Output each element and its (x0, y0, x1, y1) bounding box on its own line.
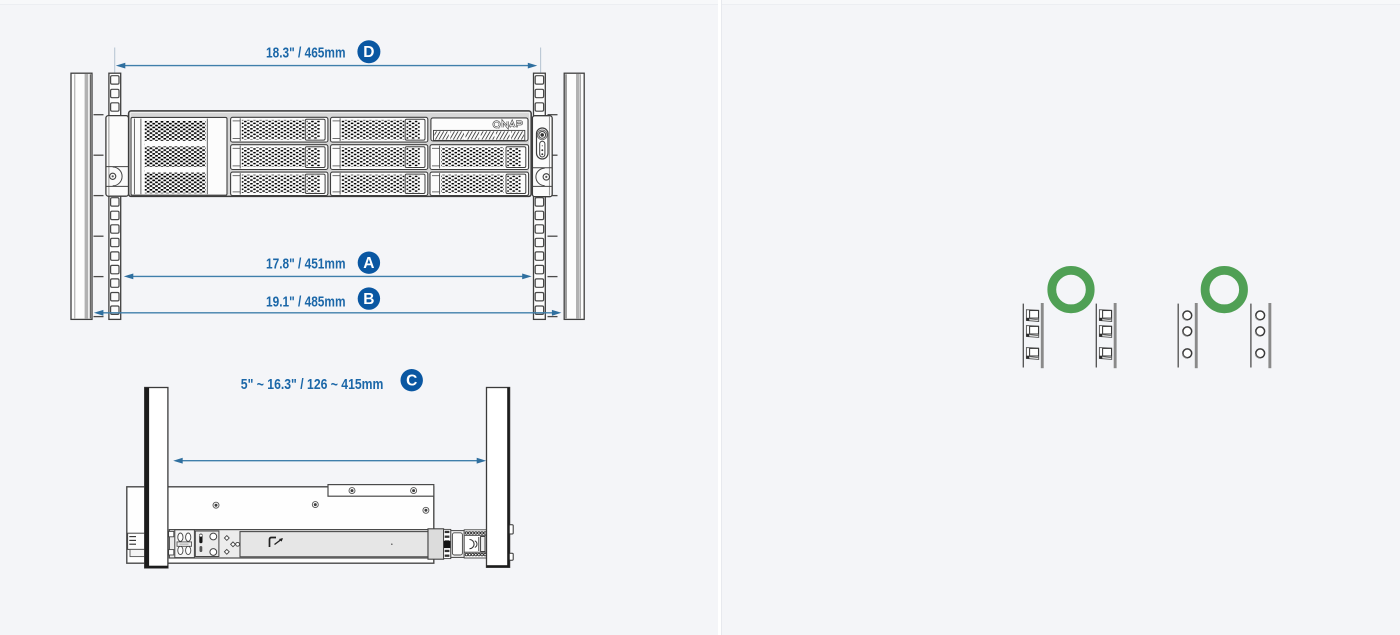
svg-text:5" ~ 16.3" / 126 ~ 415mm: 5" ~ 16.3" / 126 ~ 415mm (241, 377, 384, 393)
svg-text:19.1" / 485mm: 19.1" / 485mm (266, 295, 346, 311)
svg-text:D: D (363, 44, 374, 61)
svg-text:A: A (363, 255, 374, 272)
svg-text:C: C (406, 373, 417, 390)
svg-text:18.3" / 465mm: 18.3" / 465mm (266, 46, 346, 62)
svg-text:B: B (363, 291, 374, 308)
svg-text:17.8" / 451mm: 17.8" / 451mm (266, 256, 346, 272)
